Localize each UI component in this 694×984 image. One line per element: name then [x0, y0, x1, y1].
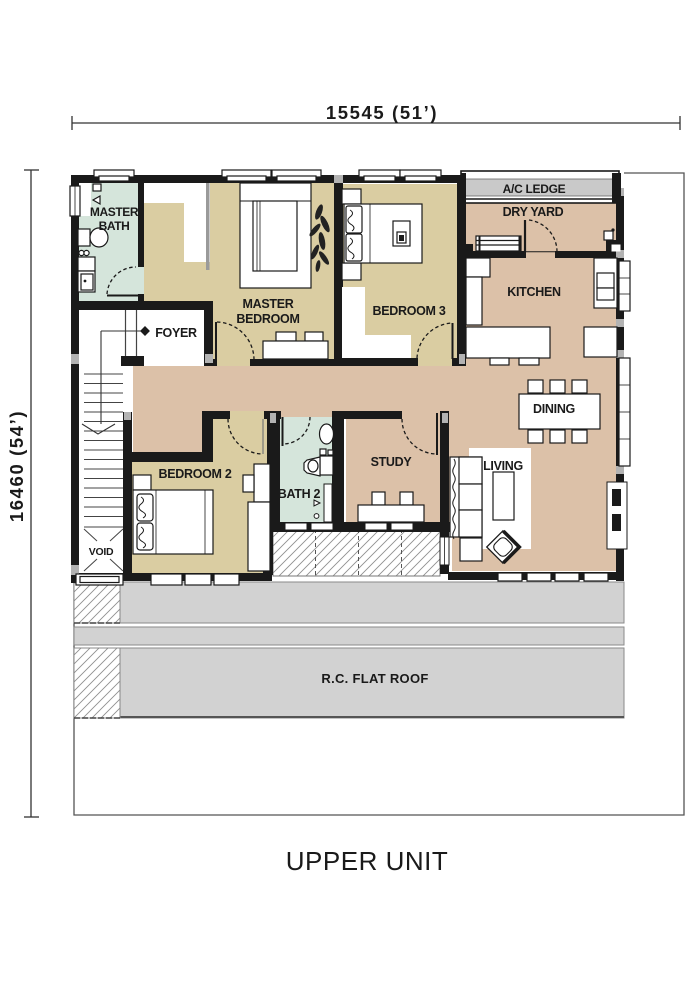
svg-text:A/C LEDGE: A/C LEDGE: [503, 182, 566, 196]
svg-text:UPPER UNIT: UPPER UNIT: [286, 846, 448, 876]
svg-text:BEDROOM 2: BEDROOM 2: [158, 467, 231, 481]
svg-text:FOYER: FOYER: [155, 326, 197, 340]
svg-text:BATH: BATH: [99, 219, 130, 233]
svg-text:MASTER: MASTER: [243, 297, 294, 311]
svg-text:VOID: VOID: [89, 546, 114, 558]
svg-text:DINING: DINING: [533, 402, 575, 416]
svg-text:BATH 2: BATH 2: [278, 487, 321, 501]
svg-text:STUDY: STUDY: [371, 455, 413, 469]
svg-text:16460 (54’): 16460 (54’): [6, 410, 27, 522]
svg-text:BEDROOM: BEDROOM: [236, 312, 299, 326]
svg-text:15545 (51’): 15545 (51’): [326, 102, 438, 123]
svg-text:BEDROOM 3: BEDROOM 3: [372, 304, 445, 318]
svg-text:DRY YARD: DRY YARD: [503, 205, 564, 219]
svg-text:R.C. FLAT ROOF: R.C. FLAT ROOF: [321, 671, 428, 686]
svg-text:MASTER: MASTER: [90, 205, 139, 219]
svg-text:LIVING: LIVING: [483, 459, 523, 473]
svg-text:KITCHEN: KITCHEN: [507, 285, 561, 299]
